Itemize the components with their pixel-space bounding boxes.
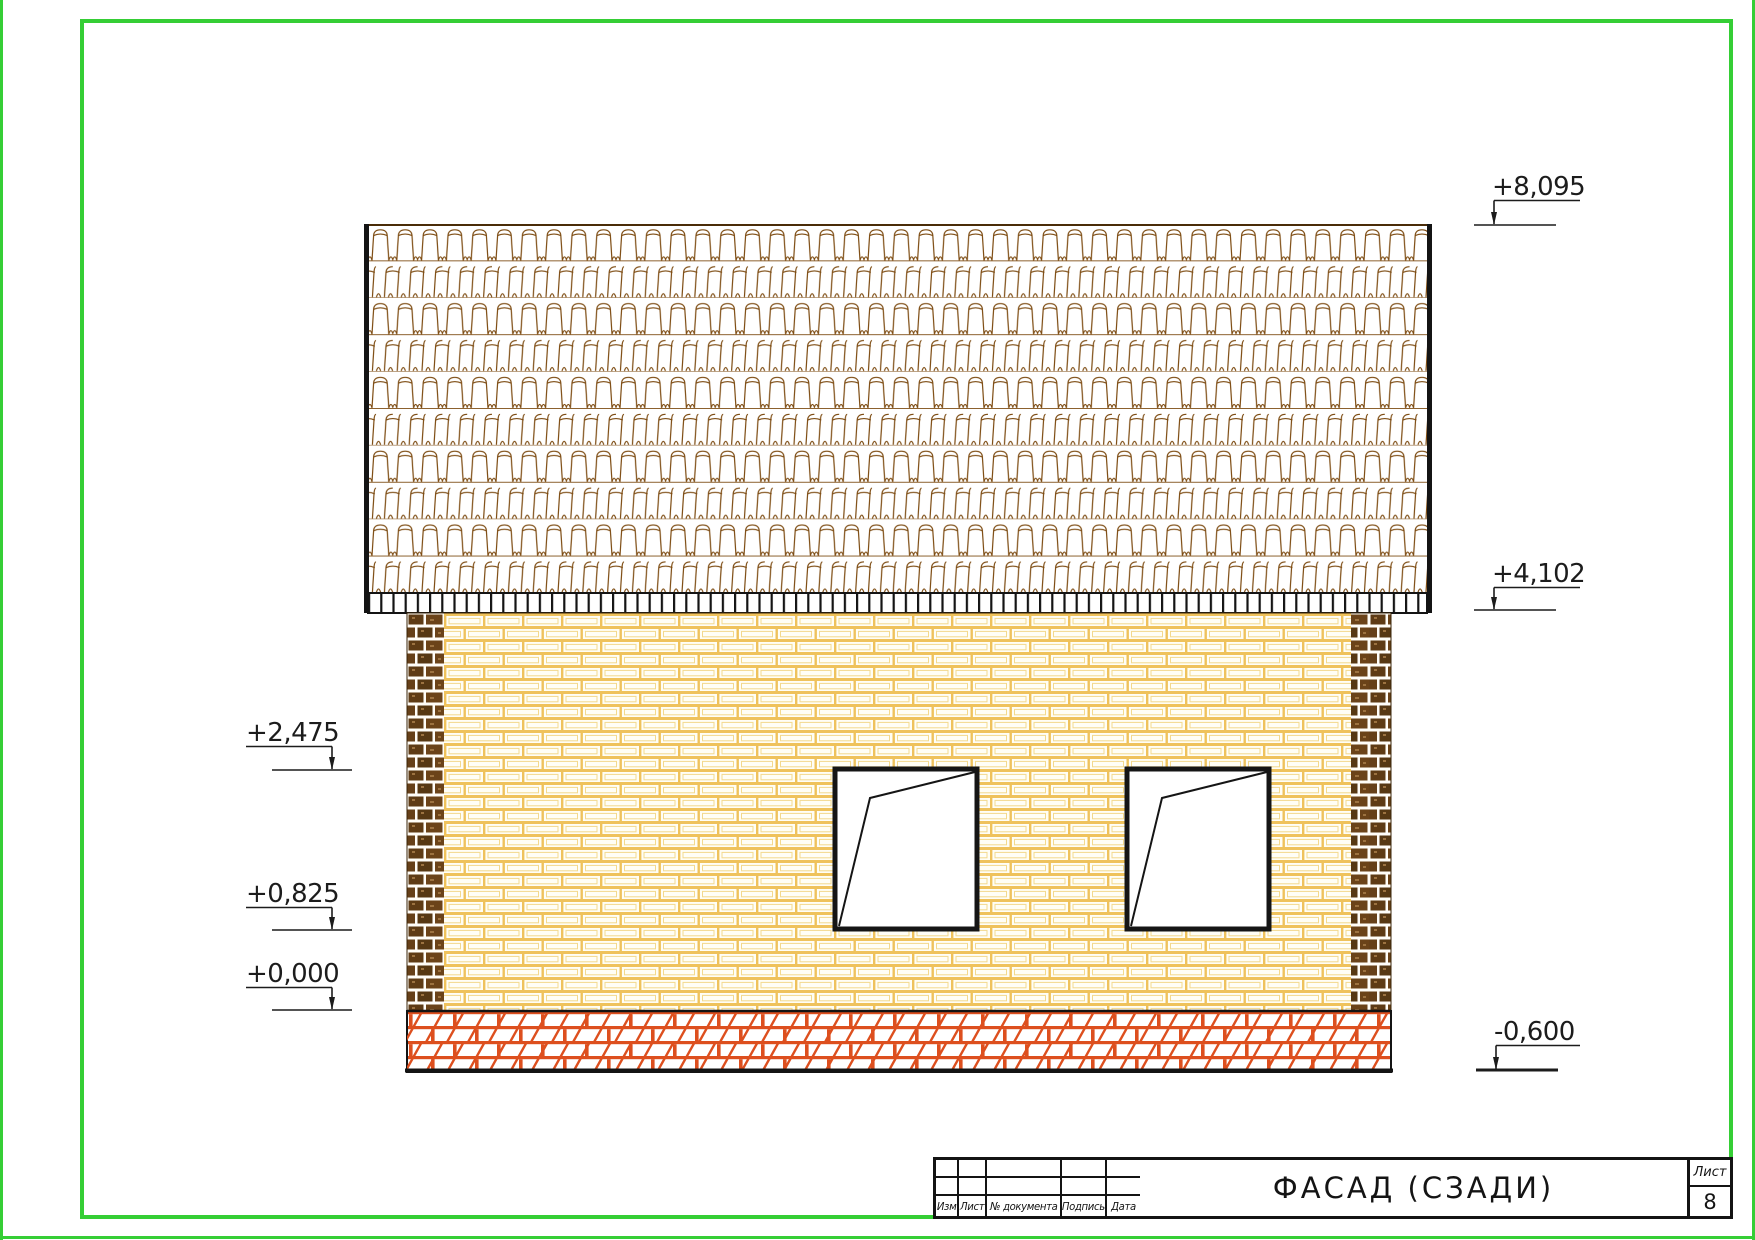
window-1 [835, 769, 977, 929]
stamp-cell [936, 1178, 959, 1196]
elevation-mark-window-head: +2,475 [246, 718, 352, 770]
window-1-frame [835, 769, 977, 929]
elevation-label: +0,000 [246, 959, 339, 989]
roof [364, 224, 1432, 613]
corner-pilaster-left [407, 613, 444, 1011]
window-2-frame [1127, 769, 1269, 929]
stamp-cell [1062, 1178, 1107, 1196]
title-block: Изм Лист № документа Подпись Дата ФАСАД … [933, 1157, 1733, 1219]
elevation-mark-eaves: +4,102 [1474, 559, 1585, 610]
roof-eaves-strokes [368, 593, 1427, 613]
stamp-cell [959, 1178, 987, 1196]
stamp-cell [936, 1160, 959, 1178]
stamp-cell [1062, 1160, 1107, 1178]
elevation-label: +8,095 [1492, 172, 1585, 202]
stamp-column-label: Лист [960, 1200, 984, 1213]
stamp-column-label: Дата [1111, 1200, 1136, 1213]
stamp-column-sign: Подпись [1062, 1196, 1107, 1216]
stamp-column-doc: № документа [987, 1196, 1062, 1216]
stamp-column-label: Изм [937, 1200, 956, 1213]
stamp-column-date: Дата [1107, 1196, 1140, 1216]
stamp-cell [987, 1178, 1062, 1196]
roof-edge-left [364, 224, 369, 613]
stamp-column-list: Лист [959, 1196, 987, 1216]
drawing-title: ФАСАД (СЗАДИ) [1140, 1160, 1687, 1216]
roof-tiles [368, 224, 1428, 593]
revision-table: Изм Лист № документа Подпись Дата [936, 1160, 1140, 1216]
stamp-cell [959, 1160, 987, 1178]
stamp-cell [1107, 1178, 1140, 1196]
sheet-label: Лист [1690, 1160, 1730, 1187]
elevation-mark-window-sill: +0,825 [246, 879, 352, 930]
elevation-label: -0,600 [1494, 1017, 1575, 1047]
facade-drawing: +8,095 +4,102 -0,600 +2,475 +0,825 +0,00… [0, 0, 1755, 1240]
stamp-cell [987, 1160, 1062, 1178]
stamp-column-izm: Изм [936, 1196, 959, 1216]
stamp-cell [1107, 1160, 1140, 1178]
window-2 [1127, 769, 1269, 929]
corner-pilaster-right [1351, 613, 1391, 1011]
elevation-mark-roof-top: +8,095 [1474, 172, 1585, 225]
stamp-column-label: № документа [990, 1200, 1058, 1213]
elevation-mark-ground: +0,000 [246, 959, 352, 1010]
elevation-label: +0,825 [246, 879, 339, 909]
foundation-hatch [407, 1011, 1391, 1072]
elevation-label: +2,475 [246, 718, 339, 748]
foundation [405, 1011, 1393, 1072]
roof-edge-right [1427, 224, 1432, 613]
sheet-box: Лист 8 [1687, 1160, 1730, 1216]
elevation-mark-foundation-bottom: -0,600 [1476, 1017, 1580, 1070]
sheet-number: 8 [1690, 1187, 1730, 1216]
stamp-column-label: Подпись [1062, 1200, 1105, 1213]
elevation-label: +4,102 [1492, 559, 1585, 589]
